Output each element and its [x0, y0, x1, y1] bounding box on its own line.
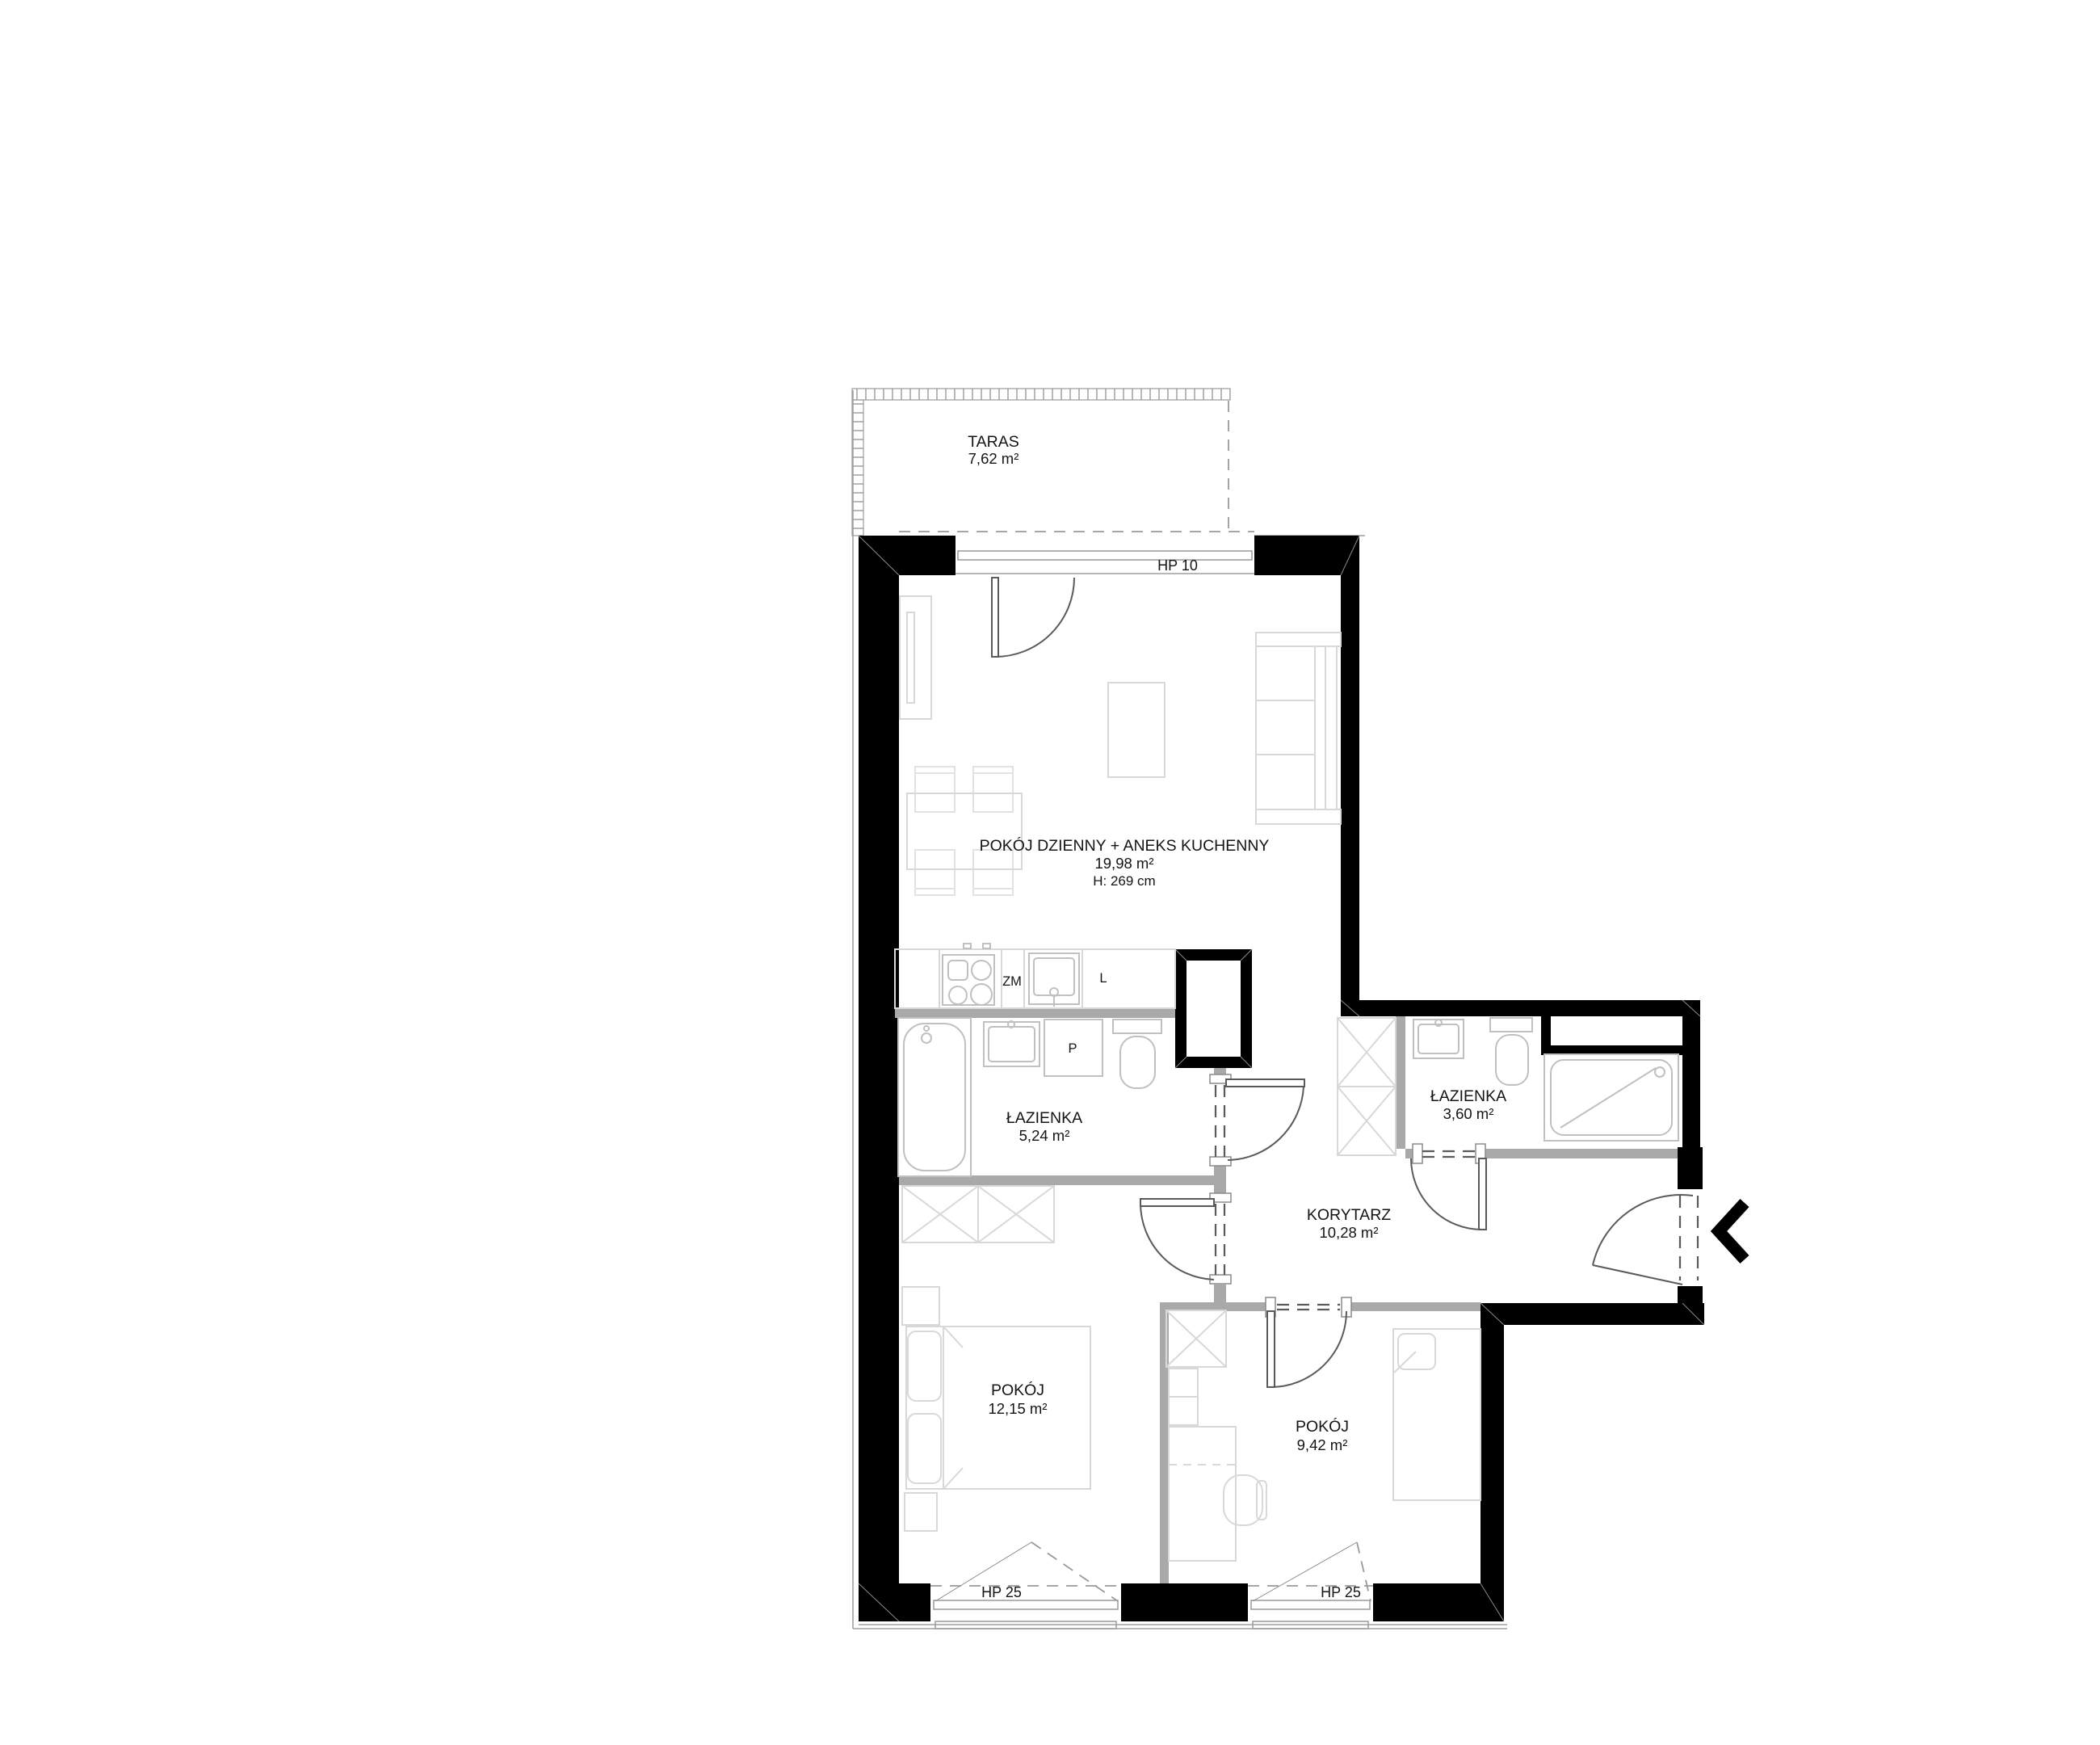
- wall-corridor-room-east: [1345, 1302, 1480, 1311]
- nightstand: [905, 1493, 937, 1531]
- hob-burner: [972, 961, 991, 980]
- entrance-jamb-top: [1678, 1147, 1703, 1189]
- shower-diagonal: [1560, 1068, 1656, 1128]
- entrance-door-swing: [1593, 1195, 1693, 1265]
- window-hp10-opening: [955, 536, 1254, 575]
- pillow: [908, 1331, 941, 1401]
- bathtub-drain: [924, 1026, 929, 1031]
- room2-door-swing: [1270, 1311, 1346, 1387]
- living-name: POKÓJ DZIENNY + ANEKS KUCHENNY: [980, 836, 1270, 855]
- terrace-hatch-top: [852, 389, 1230, 400]
- bath1-name: ŁAZIENKA: [1006, 1109, 1082, 1127]
- single-bed: [1393, 1329, 1480, 1500]
- door-jamb: [1210, 1157, 1231, 1166]
- terrace: TARAS 7,62 m²: [852, 389, 1254, 536]
- room2-name: POKÓJ: [1296, 1417, 1349, 1436]
- washbasin: [984, 1022, 1039, 1066]
- desk: [1169, 1427, 1236, 1561]
- bath2-name: ŁAZIENKA: [1430, 1087, 1506, 1105]
- sofa-armrest-bottom: [1256, 809, 1341, 824]
- coffee-table: [1108, 683, 1165, 777]
- living-height: H: 269 cm: [1093, 873, 1155, 889]
- wall-between-rooms: [1160, 1311, 1169, 1583]
- shower-tray-inner: [1551, 1060, 1672, 1135]
- entrance-arrow-icon: [1719, 1203, 1745, 1259]
- window-hp25l-opening: [930, 1583, 1121, 1621]
- bath2-door-leaf: [1479, 1158, 1486, 1230]
- sofa-cushion: [1256, 646, 1315, 700]
- wall-bath2-left: [1396, 1016, 1405, 1149]
- bath2-area: 3,60 m²: [1443, 1105, 1494, 1122]
- fridge-label: L: [1099, 971, 1107, 986]
- sofa-armrest-top: [1256, 633, 1341, 646]
- room2-door-leaf: [1267, 1311, 1275, 1387]
- room1-name: POKÓJ: [991, 1381, 1044, 1399]
- nightstand: [902, 1287, 939, 1325]
- hob-knob: [964, 944, 971, 948]
- wall-living-right: [1341, 572, 1359, 1016]
- toilet-bowl: [1120, 1036, 1155, 1088]
- tv-sideboard: [900, 596, 931, 719]
- shaft-inner: [1186, 961, 1241, 1057]
- floor-plan-drawing: TARAS 7,62 m²: [0, 0, 2100, 1745]
- bath1-area: 5,24 m²: [1019, 1127, 1070, 1144]
- shower-drain: [1655, 1067, 1665, 1077]
- hob-burner: [949, 986, 967, 1004]
- washbasin-inner: [989, 1027, 1035, 1062]
- entrance-door-leaf: [1593, 1265, 1682, 1285]
- kitchen-sink-basin: [1034, 958, 1074, 995]
- wall-right-exterior: [1682, 1016, 1700, 1147]
- wall-left-exterior: [859, 536, 899, 1621]
- washer-label: P: [1068, 1041, 1077, 1056]
- wall-kitchen-bath1: [895, 1008, 1175, 1018]
- terrace-door-leaf: [992, 578, 998, 657]
- window-hp25r-label: HP 25: [1321, 1584, 1361, 1600]
- wall-wing-top: [1359, 1000, 1700, 1016]
- bathtub: [898, 1018, 971, 1176]
- wall-column-mid: [1214, 1163, 1226, 1194]
- partition-walls: [895, 1008, 1678, 1583]
- room-1: POKÓJ 12,15 m²: [902, 1186, 1090, 1531]
- room2-area: 9,42 m²: [1297, 1436, 1348, 1453]
- wall-corridor-bottom: [1480, 1303, 1704, 1325]
- room1-door-swing: [1140, 1203, 1214, 1280]
- wall-room2-right: [1480, 1325, 1504, 1583]
- living-area: 19,98 m²: [1094, 855, 1153, 872]
- hob-knob: [983, 944, 990, 948]
- bath2-door-swing: [1411, 1158, 1482, 1230]
- door-jamb: [1413, 1144, 1422, 1163]
- bathtub-inner: [904, 1024, 965, 1171]
- bathroom-1: P ŁAZIENKA 5,24 m²: [898, 1018, 1161, 1176]
- terrace-name: TARAS: [968, 433, 1019, 451]
- bathtub-faucet: [922, 1033, 931, 1043]
- hob-burner: [971, 984, 992, 1005]
- terrace-door-swing: [995, 578, 1074, 657]
- bath1-door-leaf: [1226, 1079, 1304, 1087]
- toilet-tank: [1113, 1020, 1161, 1033]
- pillow: [908, 1414, 941, 1483]
- bed-fold: [943, 1468, 963, 1489]
- hob-burner: [948, 961, 968, 980]
- corridor-area: 10,28 m²: [1319, 1224, 1378, 1241]
- washbasin-inner: [1418, 1024, 1459, 1053]
- dishwasher-label: ZM: [1002, 974, 1022, 989]
- bed-fold: [943, 1327, 963, 1348]
- room-2: POKÓJ 9,42 m²: [1166, 1310, 1480, 1561]
- terrace-hatch-left: [852, 400, 863, 536]
- wall-bath2-bottom-east: [1484, 1149, 1678, 1158]
- tv-panel: [907, 612, 914, 703]
- wall-top-left: [859, 536, 955, 575]
- toilet-bowl: [1496, 1035, 1528, 1085]
- floor-plan-page: TARAS 7,62 m²: [0, 0, 2100, 1745]
- sofa-cushion: [1256, 755, 1315, 809]
- corridor-name: KORYTARZ: [1307, 1206, 1391, 1224]
- dining-table: [907, 793, 1022, 869]
- room1-area: 12,15 m²: [988, 1400, 1047, 1417]
- room1-door-leaf: [1140, 1199, 1214, 1206]
- living-room: ZM L POKÓJ DZIENNY + ANEKS KUCHENNY 19,9…: [895, 596, 1341, 1008]
- window-hp25l-label: HP 25: [981, 1584, 1022, 1600]
- terrace-area: 7,62 m²: [968, 450, 1019, 467]
- wall-bottom-pier: [1121, 1583, 1248, 1621]
- bath1-door-swing: [1228, 1087, 1304, 1160]
- corridor: KORYTARZ 10,28 m²: [1307, 1018, 1396, 1241]
- window-hp10-label: HP 10: [1157, 557, 1198, 574]
- wall-column-low: [1214, 1285, 1226, 1303]
- entrance-jamb-bottom: [1678, 1286, 1703, 1304]
- toilet-tank: [1490, 1018, 1532, 1032]
- wall-bottom-left: [859, 1583, 930, 1621]
- sofa-cushion: [1256, 700, 1315, 755]
